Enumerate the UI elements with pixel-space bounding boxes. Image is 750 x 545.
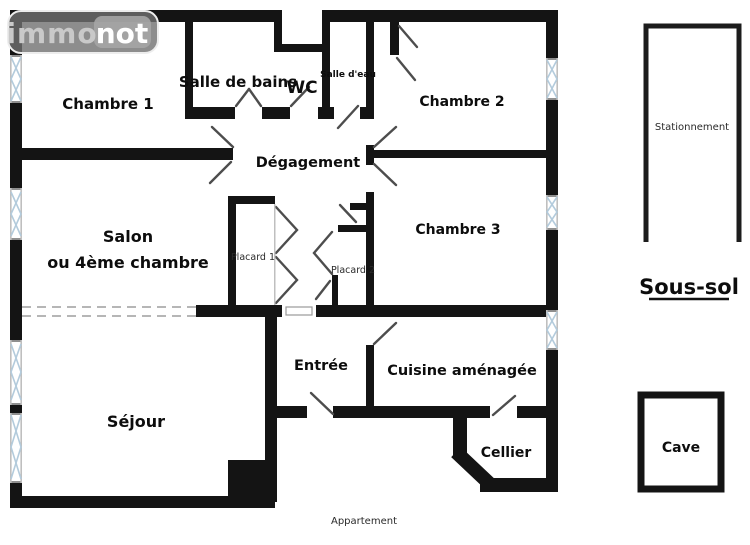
room-label-degagement: Dégagement — [256, 155, 361, 171]
basement-section — [641, 26, 739, 489]
room-label-chambre1: Chambre 1 — [62, 95, 153, 113]
room-label-cellier: Cellier — [481, 445, 532, 461]
room-label-stationnement: Stationnement — [655, 122, 729, 133]
room-label-salle-de-bains: Salle de bains — [179, 73, 297, 91]
room-label-sejour: Séjour — [107, 412, 165, 431]
immonot-logo: immo not — [6, 11, 158, 53]
floorplan-canvas: Chambre 1 Salle de bains WC Salle d'eau … — [0, 0, 750, 545]
room-label-entree: Entrée — [294, 358, 348, 374]
room-label-cuisine: Cuisine aménagée — [387, 363, 537, 379]
window-chambre3 — [546, 195, 558, 230]
apartment-caption: Appartement — [331, 516, 397, 527]
room-labels: Chambre 1 Salle de bains WC Salle d'eau … — [47, 70, 739, 527]
room-label-salon-line1: Salon — [103, 227, 153, 246]
window-salon — [10, 188, 22, 240]
basement-title: Sous-sol — [639, 275, 739, 299]
room-label-salon-line2: ou 4ème chambre — [47, 253, 209, 272]
room-label-salle-deau: Salle d'eau — [320, 70, 376, 80]
room-label-placard1: Placard 1 — [231, 252, 275, 263]
open-span-dashed — [22, 307, 196, 316]
room-label-cave: Cave — [662, 440, 700, 456]
stationnement-outline — [646, 26, 739, 242]
sliding-door — [282, 305, 316, 317]
room-label-placard2: Placard 2 — [331, 265, 375, 276]
window-sejour-1 — [10, 340, 22, 405]
logo-text-not: not — [96, 17, 149, 50]
window-sejour-2 — [10, 413, 22, 483]
room-label-wc: WC — [286, 78, 317, 98]
room-label-chambre2: Chambre 2 — [419, 94, 504, 110]
window-chambre2 — [546, 58, 558, 100]
window-cuisine — [546, 310, 558, 350]
logo-text-immo: immo — [6, 17, 97, 50]
room-label-chambre3: Chambre 3 — [415, 222, 500, 238]
window-chambre1 — [10, 55, 22, 103]
floorplan-svg: Chambre 1 Salle de bains WC Salle d'eau … — [0, 0, 750, 545]
